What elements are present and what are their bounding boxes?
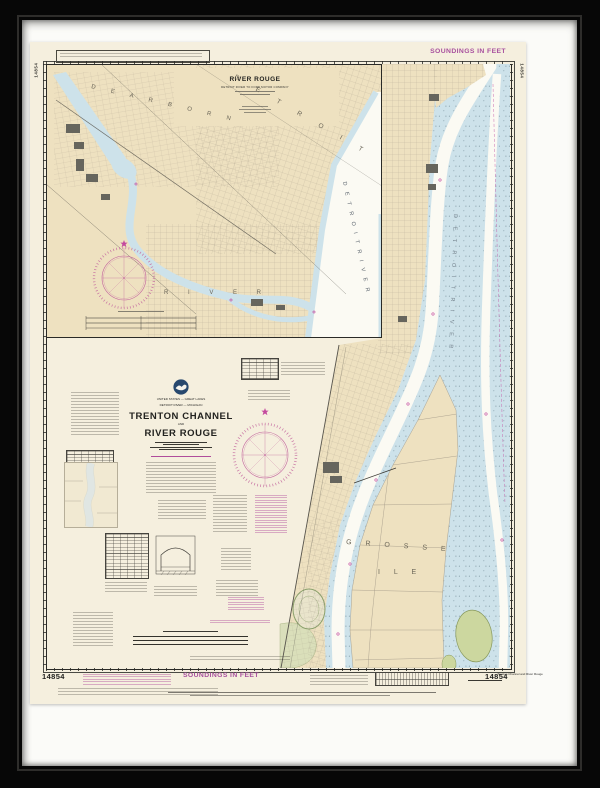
note-small-2: [216, 580, 258, 596]
notes-paragraph-center: [146, 462, 216, 495]
logarithmic-speed-scale: [375, 672, 449, 686]
inset-bar-scales: [86, 316, 196, 330]
text-block: [60, 53, 202, 59]
note-small-1: [221, 548, 251, 572]
text-block-lower-left: [73, 612, 113, 646]
note-column-black: [213, 495, 247, 533]
bar-scales: [133, 636, 248, 649]
side-number-right: 14854: [520, 63, 525, 77]
grosse-ile-label-2: I L E: [378, 569, 422, 576]
river-label: R I V E R: [164, 290, 270, 296]
compass-north-star: [261, 408, 268, 415]
authorities-block: [158, 500, 206, 520]
fine-print-line-2: [190, 695, 390, 696]
title-region-line: DETROIT RIVER — MICHIGAN: [121, 404, 241, 407]
chart-number-bottom-right: 14854: [485, 672, 508, 681]
tabulation-diagram: [105, 533, 147, 593]
river-rouge-inset-map: RIVER ROUGE DETROIT RIVER TO FORD MOTOR …: [46, 64, 382, 338]
chart-number-bottom-left: 14854: [42, 672, 65, 681]
location-diagram: [64, 462, 118, 528]
magenta-note-2: [210, 620, 270, 625]
chart-title-conjunction: AND: [121, 423, 241, 426]
border-ticks-right: [510, 64, 513, 668]
producer-note: [310, 672, 368, 685]
scale-caption-line: [163, 631, 218, 632]
chart-paper: SOUNDINGS IN FEET 14854 14854: [30, 42, 526, 704]
wharf-table: [241, 358, 279, 380]
joins-note: [190, 656, 290, 661]
border-ticks-bottom: [46, 668, 510, 671]
soundings-note-top: SOUNDINGS IN FEET: [370, 48, 506, 55]
side-number-left: 14854: [34, 63, 39, 77]
title-country-line: UNITED STATES — GREAT LAKES: [121, 398, 241, 401]
caution-note: [248, 390, 290, 401]
magenta-marginal-note: [83, 674, 171, 686]
note-beside-table: [281, 362, 325, 377]
caution-column-magenta: [255, 495, 287, 533]
soundings-note-bottom: SOUNDINGS IN FEET: [183, 672, 303, 679]
projection-scale-lines: [141, 442, 221, 450]
magenta-note-1: [228, 597, 264, 610]
noaa-logo: [173, 379, 189, 395]
fine-print-line-1: [168, 692, 436, 693]
compass-rose: [225, 405, 305, 491]
bridge-clearance-diagram: [154, 533, 197, 593]
datum-note-magenta: [151, 456, 211, 457]
framed-chart-photo: SOUNDINGS IN FEET 14854 14854: [0, 0, 600, 788]
